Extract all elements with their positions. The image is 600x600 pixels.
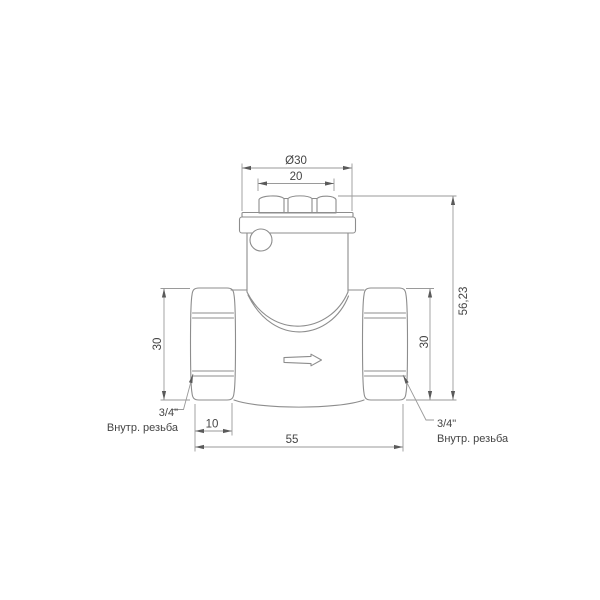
dim-overall-length: 55: [195, 434, 403, 449]
bonnet-boss-circle: [250, 229, 272, 251]
drawing-canvas: Ø30 20 30 30 56,23: [0, 0, 600, 600]
right-thread-type-label: Внутр. резьба: [437, 433, 509, 445]
right-port-facet-lines: [365, 313, 406, 376]
check-valve-technical-drawing: Ø30 20 30 30 56,23: [0, 0, 600, 600]
extension-lines: [161, 164, 457, 452]
dim-cap-diameter: Ø30: [242, 155, 352, 170]
right-thread-annotation: 3/4" Внутр. резьба: [403, 375, 509, 445]
valve-body-outline: [191, 196, 408, 407]
seat-saddle-curve-outer: [247, 292, 348, 326]
flow-direction-arrow: [284, 354, 322, 366]
dim-cap-diameter-label: Ø30: [285, 155, 307, 167]
dim-cap-flats: 20: [258, 171, 334, 186]
dim-thread-depth-label: 10: [206, 419, 219, 431]
right-port-nut: [363, 288, 408, 400]
left-port-nut: [191, 288, 236, 400]
dim-overall-height-label: 56,23: [458, 287, 470, 316]
dim-thread-depth: 10: [195, 419, 232, 434]
dim-cap-flats-label: 20: [290, 171, 303, 183]
dim-left-port-height: 30: [152, 289, 166, 401]
body-bottom-arc: [234, 400, 364, 407]
dim-right-port-height: 30: [419, 289, 432, 401]
left-thread-annotation: 3/4" Внутр. резьба: [107, 374, 193, 434]
right-thread-size-label: 3/4": [437, 418, 456, 430]
dim-overall-height: 56,23: [451, 196, 470, 400]
dim-left-port-height-label: 30: [152, 338, 164, 351]
hex-cap-facet-lines: [284, 199, 317, 214]
dim-overall-length-label: 55: [286, 434, 299, 446]
hex-cap: [259, 196, 336, 213]
left-thread-type-label: Внутр. резьба: [107, 422, 179, 434]
left-port-facet-lines: [193, 313, 234, 376]
left-thread-size-label: 3/4": [159, 407, 178, 419]
dim-right-port-height-label: 30: [419, 336, 431, 349]
